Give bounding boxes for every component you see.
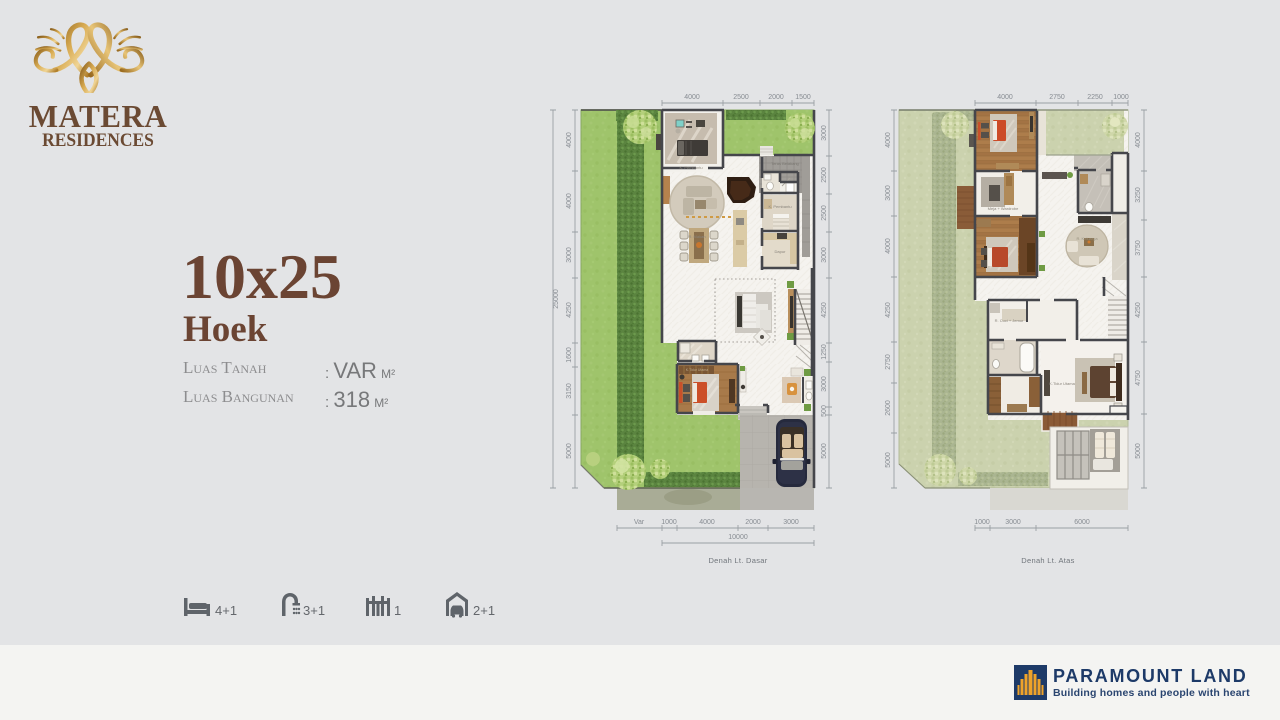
svg-text:1000: 1000	[661, 519, 677, 526]
svg-text:K. Pembantu: K. Pembantu	[679, 165, 702, 170]
svg-text:2000: 2000	[768, 94, 784, 101]
svg-text:2500: 2500	[821, 205, 828, 221]
svg-text:2600: 2600	[885, 400, 892, 416]
svg-text:3+1: 3+1	[303, 603, 325, 618]
svg-text:3000: 3000	[885, 185, 892, 201]
svg-text:5000: 5000	[821, 443, 828, 459]
svg-text:1: 1	[394, 603, 401, 618]
svg-text:3250: 3250	[1135, 187, 1142, 203]
svg-text:1250: 1250	[821, 344, 828, 360]
svg-text:25000: 25000	[553, 289, 560, 309]
svg-text:2500: 2500	[733, 94, 749, 101]
svg-text:5000: 5000	[885, 452, 892, 468]
svg-text:3000: 3000	[821, 376, 828, 392]
svg-text:3000: 3000	[1005, 519, 1021, 526]
svg-text:4000: 4000	[885, 132, 892, 148]
svg-text:4000: 4000	[1135, 132, 1142, 148]
svg-text:Denah Lt. Dasar: Denah Lt. Dasar	[708, 556, 767, 565]
svg-text:Var: Var	[634, 519, 645, 526]
svg-text:4250: 4250	[821, 302, 828, 318]
svg-text:1000: 1000	[1113, 94, 1129, 101]
svg-text:3000: 3000	[821, 247, 828, 263]
svg-text:K.Tidur Utama: K.Tidur Utama	[1049, 381, 1075, 386]
svg-text:10000: 10000	[728, 534, 748, 541]
svg-text:4000: 4000	[885, 238, 892, 254]
svg-text:4250: 4250	[566, 302, 573, 318]
svg-text:4750: 4750	[1135, 370, 1142, 386]
svg-text:4+1: 4+1	[215, 603, 237, 618]
svg-text:K.Tidur Utama: K.Tidur Utama	[686, 368, 708, 372]
svg-text:2250: 2250	[1087, 94, 1103, 101]
svg-text:R. Keluarga: R. Keluarga	[1076, 236, 1098, 241]
svg-text:5000: 5000	[566, 443, 573, 459]
svg-text:3150: 3150	[566, 383, 573, 399]
svg-text:4250: 4250	[885, 302, 892, 318]
svg-text:2750: 2750	[885, 354, 892, 370]
svg-text:4000: 4000	[566, 132, 573, 148]
svg-text:Meja + Wardrobe: Meja + Wardrobe	[988, 206, 1019, 211]
svg-text:3750: 3750	[1135, 240, 1142, 256]
svg-text:K. Pembantu: K. Pembantu	[768, 204, 791, 209]
svg-text:R. Makan: R. Makan	[688, 234, 705, 239]
svg-text:1600: 1600	[566, 347, 573, 363]
svg-text:4000: 4000	[566, 193, 573, 209]
svg-text:1000: 1000	[974, 519, 990, 526]
svg-text:Denah Lt. Atas: Denah Lt. Atas	[1021, 556, 1074, 565]
svg-text:6000: 6000	[1074, 519, 1090, 526]
svg-text:Teras Belakang: Teras Belakang	[771, 161, 799, 166]
svg-text:4000: 4000	[699, 519, 715, 526]
svg-text:4250: 4250	[1135, 302, 1142, 318]
svg-text:Dapur: Dapur	[775, 249, 787, 254]
svg-text:4000: 4000	[684, 94, 700, 101]
svg-text:2+1: 2+1	[473, 603, 495, 618]
svg-text:1500: 1500	[795, 94, 811, 101]
svg-text:3000: 3000	[783, 519, 799, 526]
svg-text:R. Cuci + Jemur: R. Cuci + Jemur	[995, 318, 1024, 323]
svg-text:3000: 3000	[566, 247, 573, 263]
svg-text:4000: 4000	[997, 94, 1013, 101]
svg-text:2000: 2000	[745, 519, 761, 526]
svg-text:500: 500	[821, 405, 828, 417]
svg-text:5000: 5000	[1135, 443, 1142, 459]
svg-text:2750: 2750	[1049, 94, 1065, 101]
svg-text:2500: 2500	[821, 167, 828, 183]
svg-text:3000: 3000	[821, 125, 828, 141]
